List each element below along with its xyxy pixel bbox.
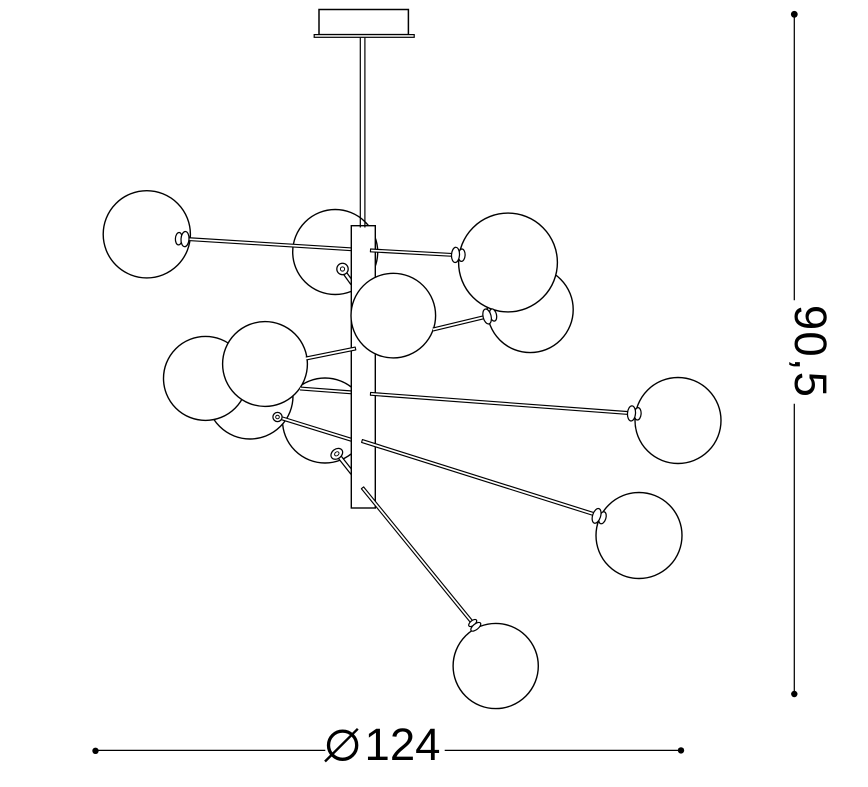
svg-text:90,5: 90,5 — [785, 305, 836, 398]
svg-text:124: 124 — [365, 719, 441, 770]
